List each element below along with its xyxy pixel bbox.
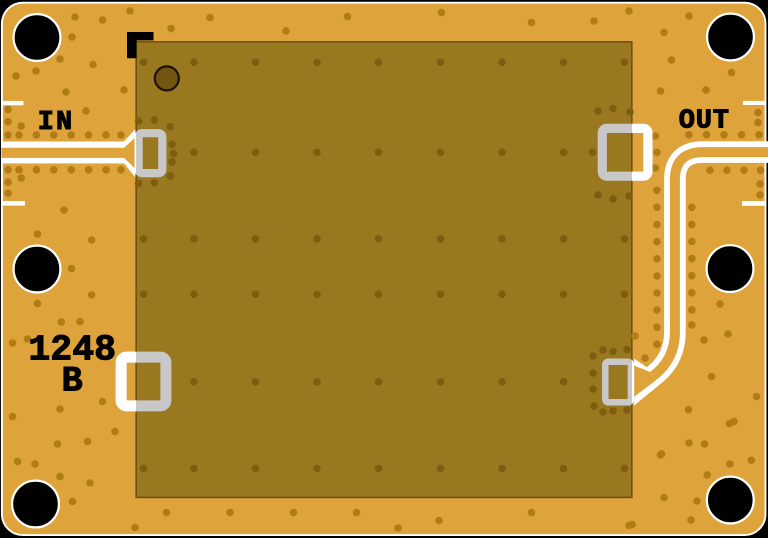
svg-text:OUT: OUT [679, 107, 730, 137]
svg-text:IN: IN [38, 108, 74, 138]
svg-text:B: B [62, 362, 83, 402]
